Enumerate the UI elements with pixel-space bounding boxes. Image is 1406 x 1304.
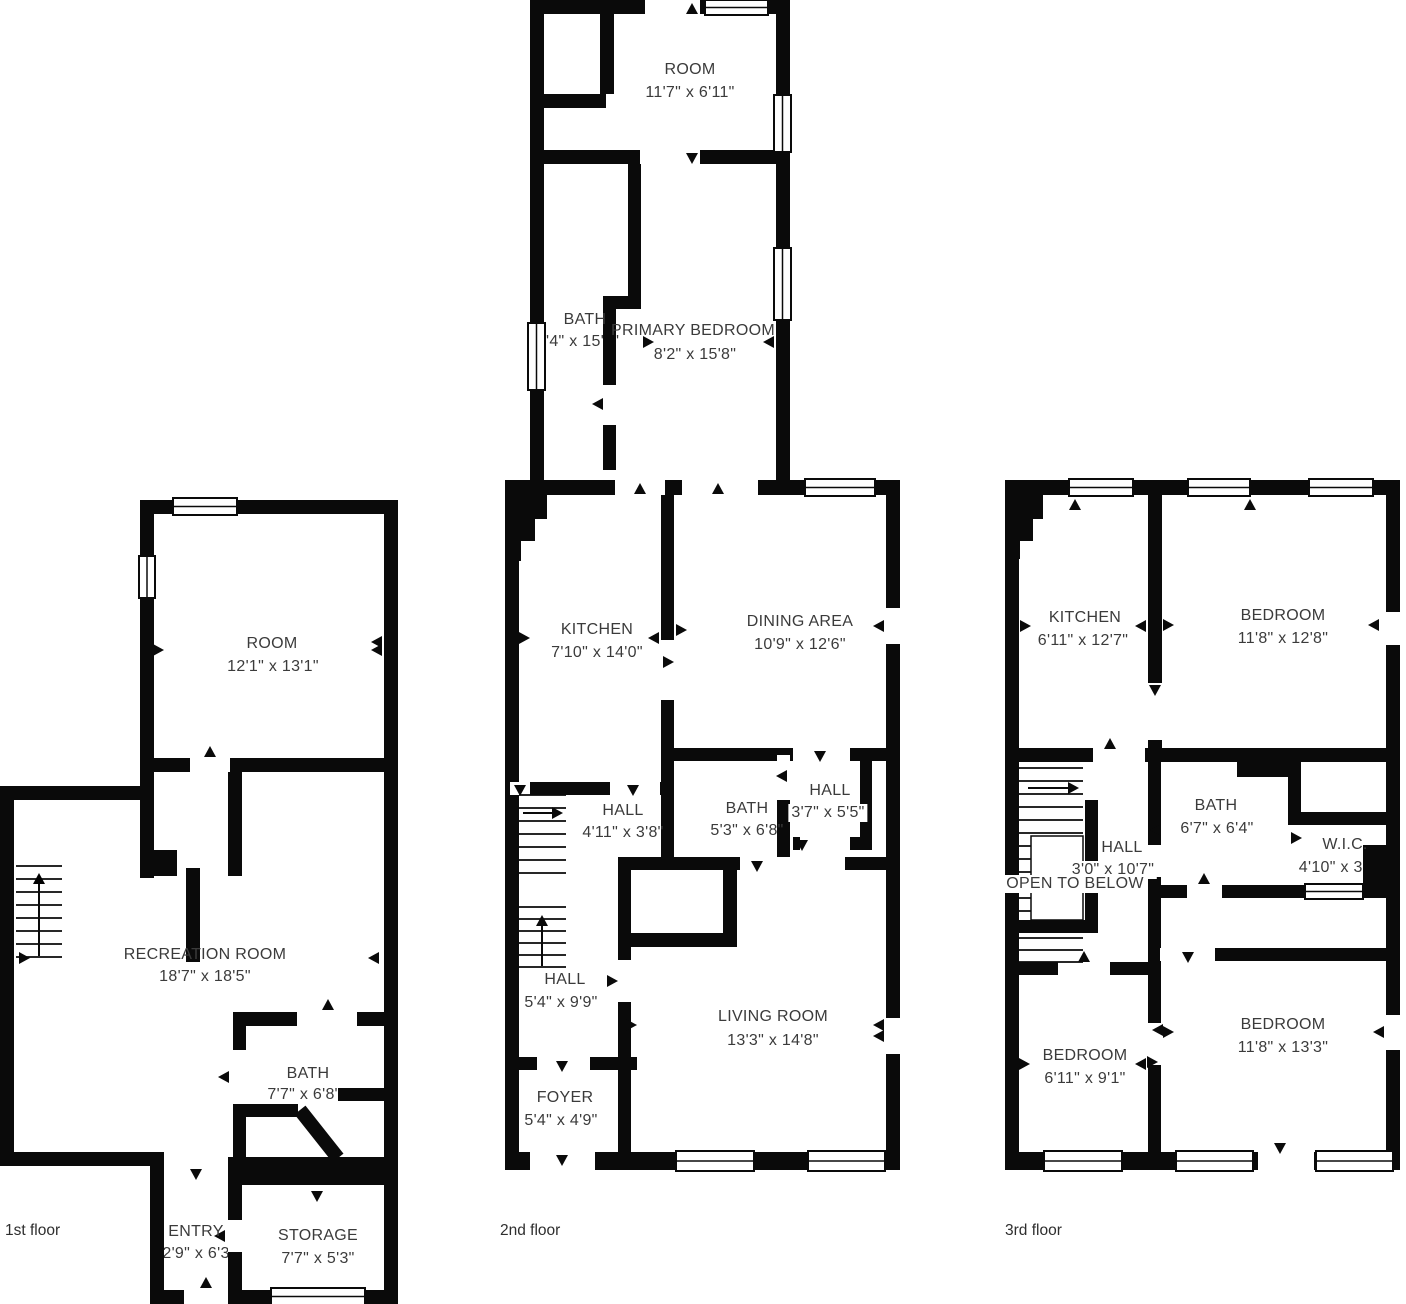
room-name-hall-b: HALL (806, 782, 853, 800)
room-name-bath-2f: BATH (726, 800, 769, 818)
room-name-bath-1f: BATH (287, 1065, 330, 1083)
room-name-recreation-room: RECREATION ROOM (124, 946, 286, 964)
room-name-kitchen-3f: KITCHEN (1049, 609, 1121, 627)
room-name-primary-bedroom: PRIMARY BEDROOM (611, 322, 775, 340)
room-dims-bath-2f: 5'3" x 6'8" (710, 822, 783, 840)
room-dims-bedroom-3f-right: 11'8" x 13'3" (1238, 1039, 1328, 1057)
room-name-foyer: FOYER (537, 1089, 594, 1107)
room-dims-living-room: 13'3" x 14'8" (727, 1032, 819, 1050)
floorplan-canvas: 7'7" x 6'8" 2'9" x 6'3" 4'4" x 15'8" 4'1… (0, 0, 1406, 1304)
room-dims-storage: 7'7" x 5'3" (281, 1250, 354, 1268)
room-dims-kitchen-2f: 7'10" x 14'0" (551, 644, 643, 662)
label-open-to-below: OPEN TO BELOW (1003, 875, 1147, 893)
room-dims-kitchen-3f: 6'11" x 12'7" (1038, 632, 1128, 650)
floor-label-2nd: 2nd floor (500, 1222, 560, 1240)
room-name-entry: ENTRY (168, 1223, 223, 1241)
room-dims-hall-c: 5'4" x 9'9" (524, 994, 597, 1012)
room-dims-bedroom-3f-left: 6'11" x 9'1" (1044, 1070, 1125, 1088)
room-name-hall-c: HALL (544, 971, 585, 989)
floor-1-walls (0, 500, 398, 1304)
room-name-hall-a: HALL (602, 802, 643, 820)
floorplan-drawing (0, 0, 1406, 1304)
floor-label-3rd: 3rd floor (1005, 1222, 1062, 1240)
room-dims-recreation-room: 18'7" x 18'5" (159, 968, 251, 986)
room-name-living-room: LIVING ROOM (718, 1008, 828, 1026)
room-name-kitchen-2f: KITCHEN (561, 621, 633, 639)
room-dims-foyer: 5'4" x 4'9" (524, 1112, 597, 1130)
room-name-storage: STORAGE (278, 1227, 358, 1245)
room-dims-room-2f: 11'7" x 6'11" (645, 84, 734, 102)
room-dims-hall-b: 3'7" x 5'5" (788, 804, 867, 822)
room-name-bedroom-3f-right: BEDROOM (1241, 1016, 1326, 1034)
room-dims-primary-bedroom: 8'2" x 15'8" (654, 346, 736, 364)
room-dims-bath-3f: 6'7" x 6'4" (1180, 820, 1253, 838)
room-dims-bedroom-3f-top: 11'8" x 12'8" (1238, 630, 1328, 648)
room-name-bedroom-3f-left: BEDROOM (1043, 1047, 1128, 1065)
room-name-room-1f: ROOM (247, 635, 298, 653)
room-name-dining-area: DINING AREA (747, 613, 853, 631)
room-dims-hall-a: 4'11" x 3'8" (582, 824, 663, 842)
room-name-bedroom-3f-top: BEDROOM (1241, 607, 1326, 625)
room-name-bath-2f-annex: BATH (564, 311, 607, 329)
floor-2-door-arrows (514, 3, 884, 1166)
room-name-hall-3f: HALL (1098, 839, 1145, 857)
room-name-wic: W.I.C. (1322, 836, 1367, 854)
floor-1-stairs (16, 866, 62, 957)
floor-label-1st: 1st floor (5, 1222, 60, 1240)
floor-2-stairs (519, 795, 566, 967)
room-dims-dining-area: 10'9" x 12'6" (754, 636, 846, 654)
room-name-bath-3f: BATH (1195, 797, 1238, 815)
room-name-room-2f: ROOM (665, 61, 716, 79)
room-dims-room-1f: 12'1" x 13'1" (227, 658, 319, 676)
